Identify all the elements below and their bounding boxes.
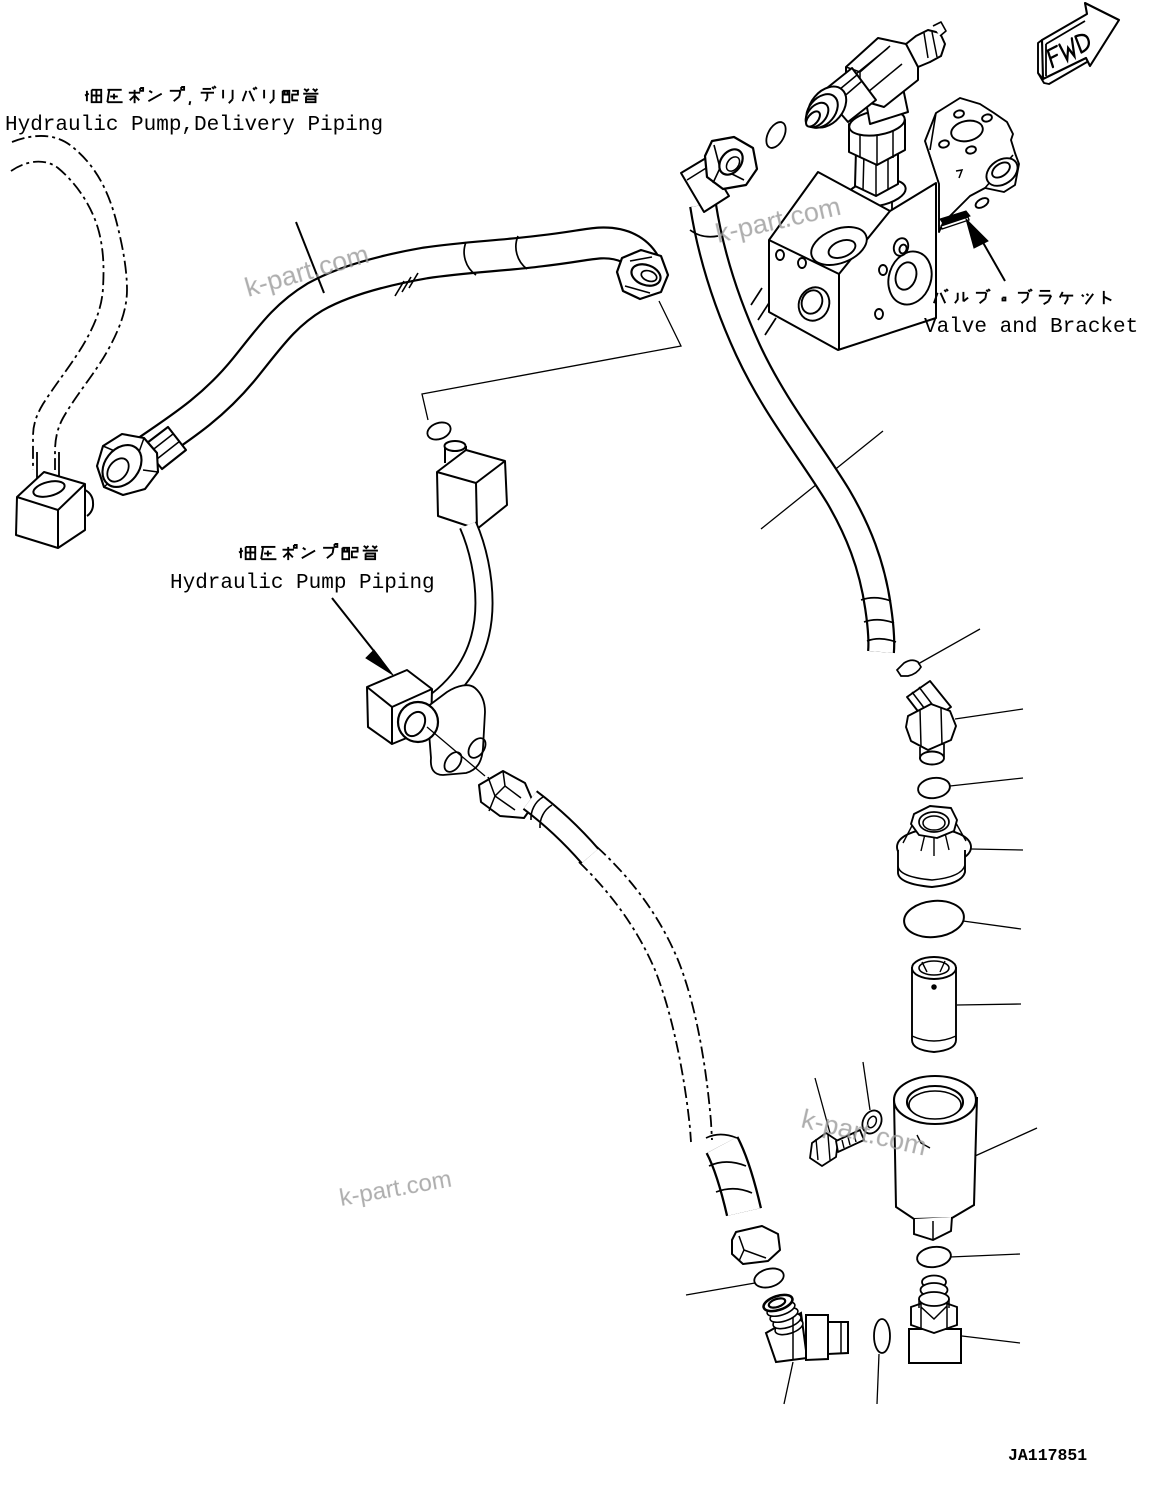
svg-text:JA117851: JA117851	[1008, 1446, 1087, 1465]
svg-text:Hydraulic Pump,Delivery Piping: Hydraulic Pump,Delivery Piping	[5, 114, 383, 137]
svg-text:Valve and Bracket: Valve and Bracket	[924, 316, 1138, 339]
svg-text:Hydraulic Pump Piping: Hydraulic Pump Piping	[170, 572, 435, 595]
